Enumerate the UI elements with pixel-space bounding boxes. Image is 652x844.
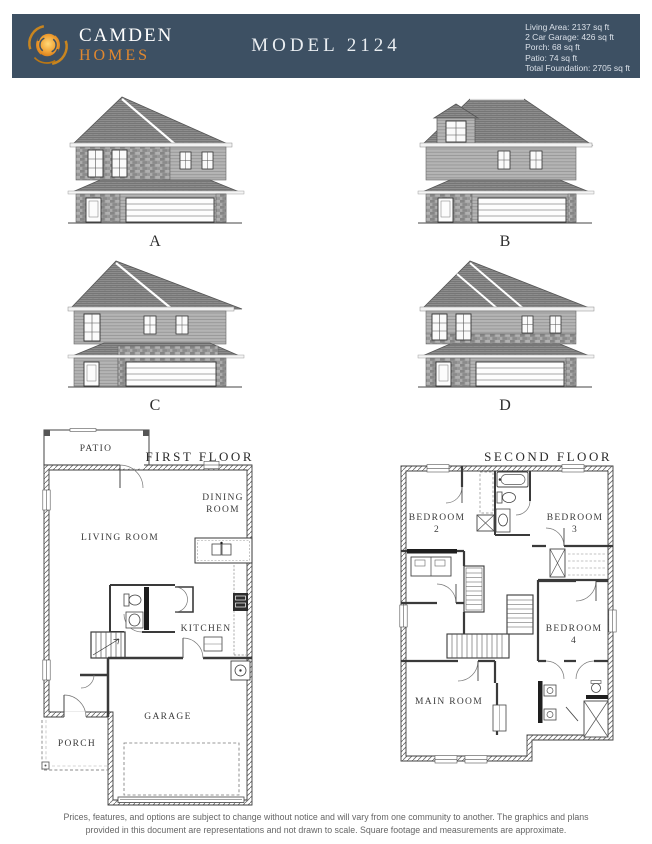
- elevation-c-label: C: [60, 397, 250, 415]
- sink-icon: [212, 544, 221, 555]
- bedroom-2-label: BEDROOM: [409, 513, 466, 523]
- first-floor-title: FIRST FLOOR: [145, 449, 254, 464]
- bathtub-icon: [497, 472, 528, 487]
- garage-door-icon: [478, 198, 566, 222]
- sink-icon: [544, 685, 556, 696]
- garage-door-icon: [126, 362, 216, 386]
- stat-total-foundation: Total Foundation: 2705 sq ft: [525, 63, 630, 73]
- stairs-icon: [91, 632, 125, 658]
- main-bathroom: [538, 681, 608, 738]
- first-floor-plan: FIRST FLOOR PATIO DINING ROOM LIVING ROO…: [40, 428, 255, 813]
- elevation-c-drawing: [60, 256, 250, 394]
- toilet-icon: [497, 492, 516, 503]
- front-door-icon: [86, 198, 101, 222]
- garage-door-icon: [476, 362, 564, 386]
- exterior-walls: [44, 465, 252, 805]
- garage-door-icon: [126, 198, 214, 222]
- dormer-window-icon: [446, 121, 466, 142]
- front-door-icon: [84, 362, 99, 386]
- elevation-b-label: B: [410, 233, 600, 251]
- elevation-d-label: D: [410, 397, 600, 415]
- shower-icon: [584, 701, 608, 737]
- header-bar: CAMDEN HOMES MODEL 2124 Living Area: 213…: [12, 14, 640, 78]
- stat-garage: 2 Car Garage: 426 sq ft: [525, 32, 630, 42]
- svg-text:4: 4: [571, 636, 577, 646]
- garage-door-dashed: [124, 743, 239, 795]
- svg-text:2: 2: [434, 525, 440, 535]
- garage-label: GARAGE: [144, 712, 191, 722]
- dining-room-label: DINING: [202, 493, 244, 503]
- svg-text:3: 3: [572, 525, 578, 535]
- patio-label: PATIO: [80, 444, 113, 454]
- pantry-closet: [175, 587, 193, 612]
- linen-closet-icon: [477, 515, 494, 531]
- living-room-label: LIVING ROOM: [81, 533, 159, 543]
- front-door-icon: [436, 362, 451, 386]
- elevation-b-drawing: [410, 92, 600, 230]
- elevation-d-drawing: [410, 256, 600, 394]
- stat-patio: Patio: 74 sq ft: [525, 53, 630, 63]
- water-heater-icon: [231, 661, 250, 680]
- svg-text:ROOM: ROOM: [206, 505, 240, 515]
- footer-disclaimer: Prices, features, and options are subjec…: [0, 811, 652, 837]
- main-room-label: MAIN ROOM: [415, 697, 483, 707]
- elevation-b: B: [410, 92, 600, 251]
- stat-porch: Porch: 68 sq ft: [525, 42, 630, 52]
- disclaimer-line-1: Prices, features, and options are subjec…: [0, 811, 652, 824]
- kitchen-label: KITCHEN: [181, 624, 232, 634]
- bedroom-4-label: BEDROOM: [546, 624, 603, 634]
- stove-icon: [233, 593, 248, 611]
- front-door: [64, 712, 86, 719]
- disclaimer-line-2: provided in this document are representa…: [0, 824, 652, 837]
- hall-bathroom: [495, 471, 530, 535]
- interior-walls: [80, 658, 252, 717]
- kitchen-island: [195, 538, 252, 563]
- staircase-icon: [447, 595, 533, 658]
- porch-label: PORCH: [58, 739, 96, 749]
- closet-icon: [538, 549, 608, 580]
- toilet-icon: [124, 594, 129, 606]
- powder-bath: [110, 585, 175, 632]
- stairs-icon: [464, 566, 484, 612]
- pedestal-sink-icon: [586, 681, 608, 700]
- elevation-c: C: [60, 256, 250, 415]
- second-floor-title: SECOND FLOOR: [484, 449, 612, 464]
- closet-icon: [401, 549, 464, 576]
- bedroom-3-label: BEDROOM: [547, 513, 604, 523]
- sink-icon: [496, 509, 510, 532]
- second-floor-plan: SECOND FLOOR BEDROOM 2 BEDROOM 3 BEDROOM…: [398, 445, 618, 770]
- elevation-a-drawing: [60, 92, 250, 230]
- stat-living-area: Living Area: 2137 sq ft: [525, 22, 630, 32]
- front-door-icon: [438, 198, 453, 222]
- elevation-a: A: [60, 92, 250, 251]
- elevation-d: D: [410, 256, 600, 415]
- stats-block: Living Area: 2137 sq ft 2 Car Garage: 42…: [525, 22, 630, 73]
- sink-icon: [126, 612, 143, 628]
- elevation-a-label: A: [60, 233, 250, 251]
